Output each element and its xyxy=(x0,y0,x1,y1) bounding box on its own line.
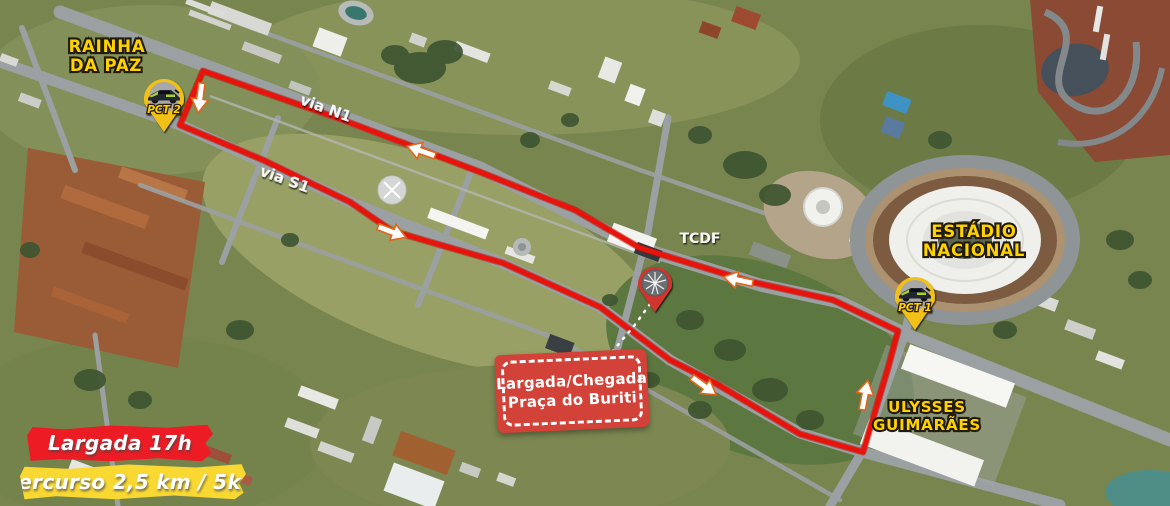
map-canvas: PCT 2 PCT 1 RAINHA DA PAZ ESTÁDIO NACION… xyxy=(0,0,1170,506)
place-label-rainha-da-paz: RAINHA xyxy=(69,37,146,56)
start-time-text: Largada 17h xyxy=(48,431,192,455)
start-time-banner: Largada 17h xyxy=(27,424,213,462)
place-label-ulysses-guimaraes: GUIMARÃES xyxy=(873,415,981,434)
place-label-rainha-da-paz: DA PAZ xyxy=(70,56,142,75)
pct1-label: PCT 1 xyxy=(898,302,932,314)
place-label-estadio-nacional: NACIONAL xyxy=(923,241,1025,260)
pct2-label: PCT 2 xyxy=(147,104,181,116)
course-distance-text: Percurso 2,5 km / 5km xyxy=(4,470,262,494)
place-label-estadio-nacional: ESTÁDIO xyxy=(931,222,1016,241)
course-distance-banner: Percurso 2,5 km / 5km xyxy=(20,463,246,500)
place-label-ulysses-guimaraes: ULYSSES xyxy=(888,398,966,416)
place-label-tcdf: TCDF xyxy=(679,231,720,247)
start-finish-badge: Largada/Chegada Praça do Buriti xyxy=(494,349,649,434)
